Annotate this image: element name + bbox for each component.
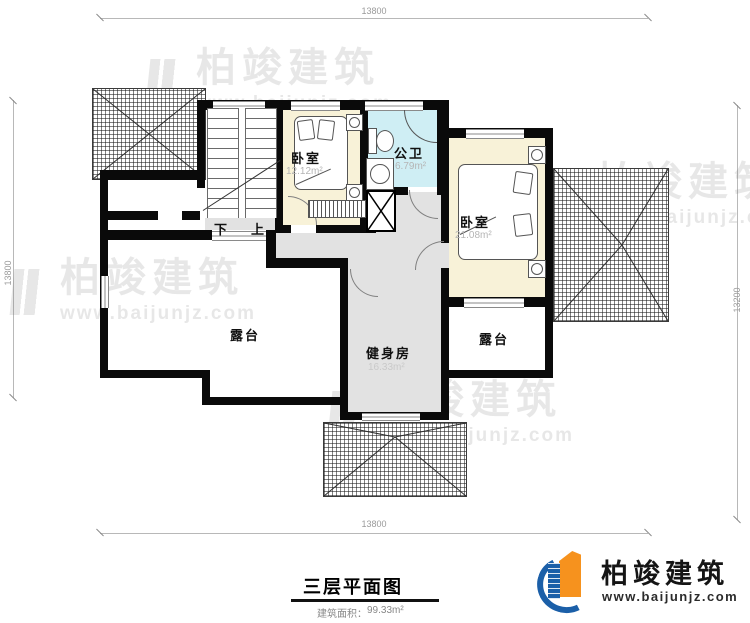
nightstand: [346, 184, 363, 201]
window: [464, 298, 524, 308]
pillow: [297, 119, 316, 141]
wall: [182, 211, 200, 220]
room-label-gym: 健身房: [366, 343, 411, 362]
title-underline: [291, 599, 439, 602]
plan-title: 三层平面图: [303, 573, 403, 599]
wall: [545, 128, 553, 378]
room-label-bathroom: 公卫: [394, 143, 424, 162]
roof-right: [553, 168, 669, 322]
watermark-brand-text: 柏竣建筑: [60, 258, 256, 298]
dimension-line-top: [100, 18, 648, 19]
stair-down-label: 下: [214, 219, 227, 238]
dimension-line-left: [13, 100, 14, 398]
wall: [100, 170, 200, 180]
dimension-label-right: 13200: [732, 270, 742, 330]
roof-hip-lines: [93, 89, 205, 179]
room-label-terrace-right: 露台: [479, 329, 509, 348]
wall: [441, 268, 449, 412]
shaft-cross-lines: [368, 192, 394, 230]
window: [362, 413, 420, 421]
wall: [100, 170, 108, 378]
watermark-logo-icon: [10, 269, 53, 315]
wall: [100, 211, 158, 220]
sink: [366, 158, 394, 190]
roof-hip-lines: [554, 169, 668, 321]
roof-top-left: [92, 88, 206, 180]
building-area-label: 建筑面积：: [317, 605, 367, 620]
wall: [266, 258, 348, 268]
nightstand: [528, 146, 546, 164]
room-label-bedroom-master: 卧室: [460, 212, 490, 231]
roof-bottom: [323, 422, 467, 497]
company-logo-brand-text: 柏竣建筑: [601, 552, 729, 591]
wall: [100, 370, 210, 378]
wall: [441, 138, 449, 243]
dimension-label-left: 13800: [3, 243, 13, 303]
watermark-brand-text: 柏竣建筑: [196, 48, 392, 88]
window: [466, 129, 524, 139]
floor-plan-canvas: 13800 13800 13800 13200 柏竣建筑 www.baijunj…: [0, 0, 750, 623]
stair-up-label: 上: [251, 219, 264, 238]
pillow: [513, 213, 534, 237]
room-area-bedroom-small: 12.12m²: [286, 166, 323, 177]
room-label-terrace-left: 露台: [230, 325, 260, 344]
window: [291, 101, 340, 111]
wall: [202, 397, 348, 405]
wall: [100, 230, 212, 240]
nightstand: [346, 114, 363, 131]
room-area-bedroom-master: 21.08m²: [455, 230, 492, 241]
nightstand: [528, 260, 546, 278]
toilet-bowl: [376, 130, 394, 152]
dimension-line-bottom: [100, 533, 648, 534]
dimension-label-top: 13800: [300, 6, 448, 16]
duct-shaft: [366, 190, 396, 232]
room-label-bedroom-small: 卧室: [291, 148, 321, 167]
pillow: [513, 171, 534, 195]
wall: [283, 225, 291, 233]
window: [101, 276, 109, 308]
roof-hip-lines: [324, 423, 466, 496]
dimension-label-bottom: 13800: [300, 519, 448, 529]
company-logo-website-text: www.baijunjz.com: [602, 589, 738, 604]
room-area-bathroom: 6.79m²: [395, 161, 426, 172]
company-logo: 柏竣建筑 www.baijunjz.com: [537, 545, 747, 613]
pillow: [317, 119, 335, 141]
building-area-value: 99.33m²: [367, 605, 404, 620]
wall: [441, 370, 553, 378]
building-area-note: 建筑面积： 99.33m²: [317, 605, 404, 620]
wardrobe: [308, 200, 366, 218]
logo-building-blue-shape: [548, 563, 560, 599]
wall: [266, 230, 276, 268]
watermark: 柏竣建筑 www.baijunjz.com: [12, 258, 256, 325]
room-area-gym: 16.33m²: [368, 362, 405, 373]
watermark-website-text: www.baijunjz.com: [60, 303, 256, 325]
